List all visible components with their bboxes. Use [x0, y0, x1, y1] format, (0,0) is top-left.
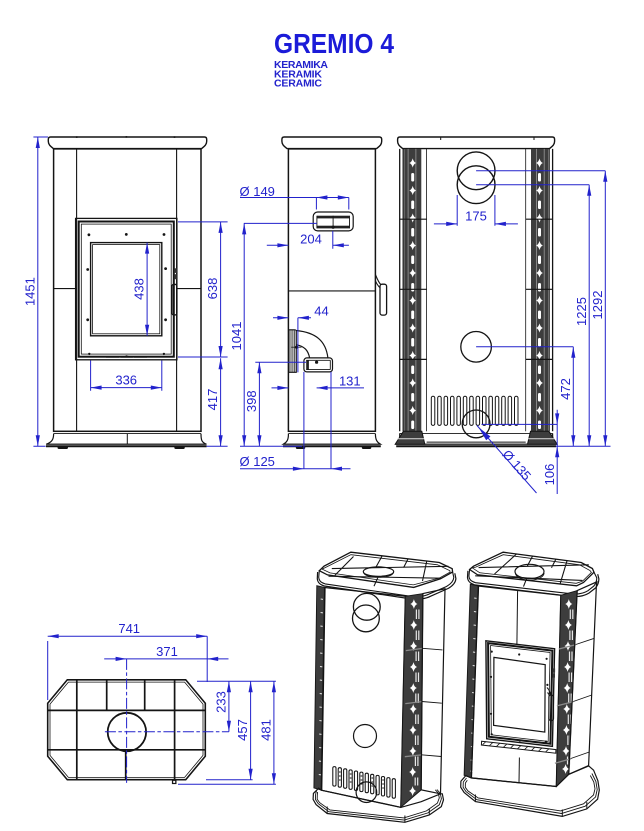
- svg-text:106: 106: [542, 464, 557, 486]
- svg-text:417: 417: [205, 389, 220, 411]
- svg-text:GREMIO 4: GREMIO 4: [274, 28, 394, 59]
- svg-text:Ø 125: Ø 125: [240, 454, 275, 469]
- svg-text:1041: 1041: [229, 322, 244, 351]
- svg-text:175: 175: [465, 208, 487, 223]
- svg-text:398: 398: [244, 390, 259, 412]
- svg-text:204: 204: [300, 231, 322, 246]
- svg-text:Ø 149: Ø 149: [240, 184, 275, 199]
- svg-text:481: 481: [259, 719, 274, 741]
- svg-text:438: 438: [132, 278, 147, 300]
- svg-text:336: 336: [115, 372, 137, 387]
- svg-text:741: 741: [118, 621, 140, 636]
- svg-text:44: 44: [314, 303, 328, 318]
- svg-text:457: 457: [235, 719, 250, 741]
- svg-text:131: 131: [339, 374, 361, 389]
- svg-text:472: 472: [558, 378, 573, 400]
- svg-text:638: 638: [205, 278, 220, 300]
- svg-text:1292: 1292: [590, 291, 605, 320]
- svg-text:1451: 1451: [23, 277, 38, 306]
- svg-text:371: 371: [156, 644, 178, 659]
- svg-text:1225: 1225: [574, 297, 589, 326]
- svg-text:CERAMIC: CERAMIC: [274, 78, 322, 90]
- svg-text:233: 233: [213, 691, 228, 713]
